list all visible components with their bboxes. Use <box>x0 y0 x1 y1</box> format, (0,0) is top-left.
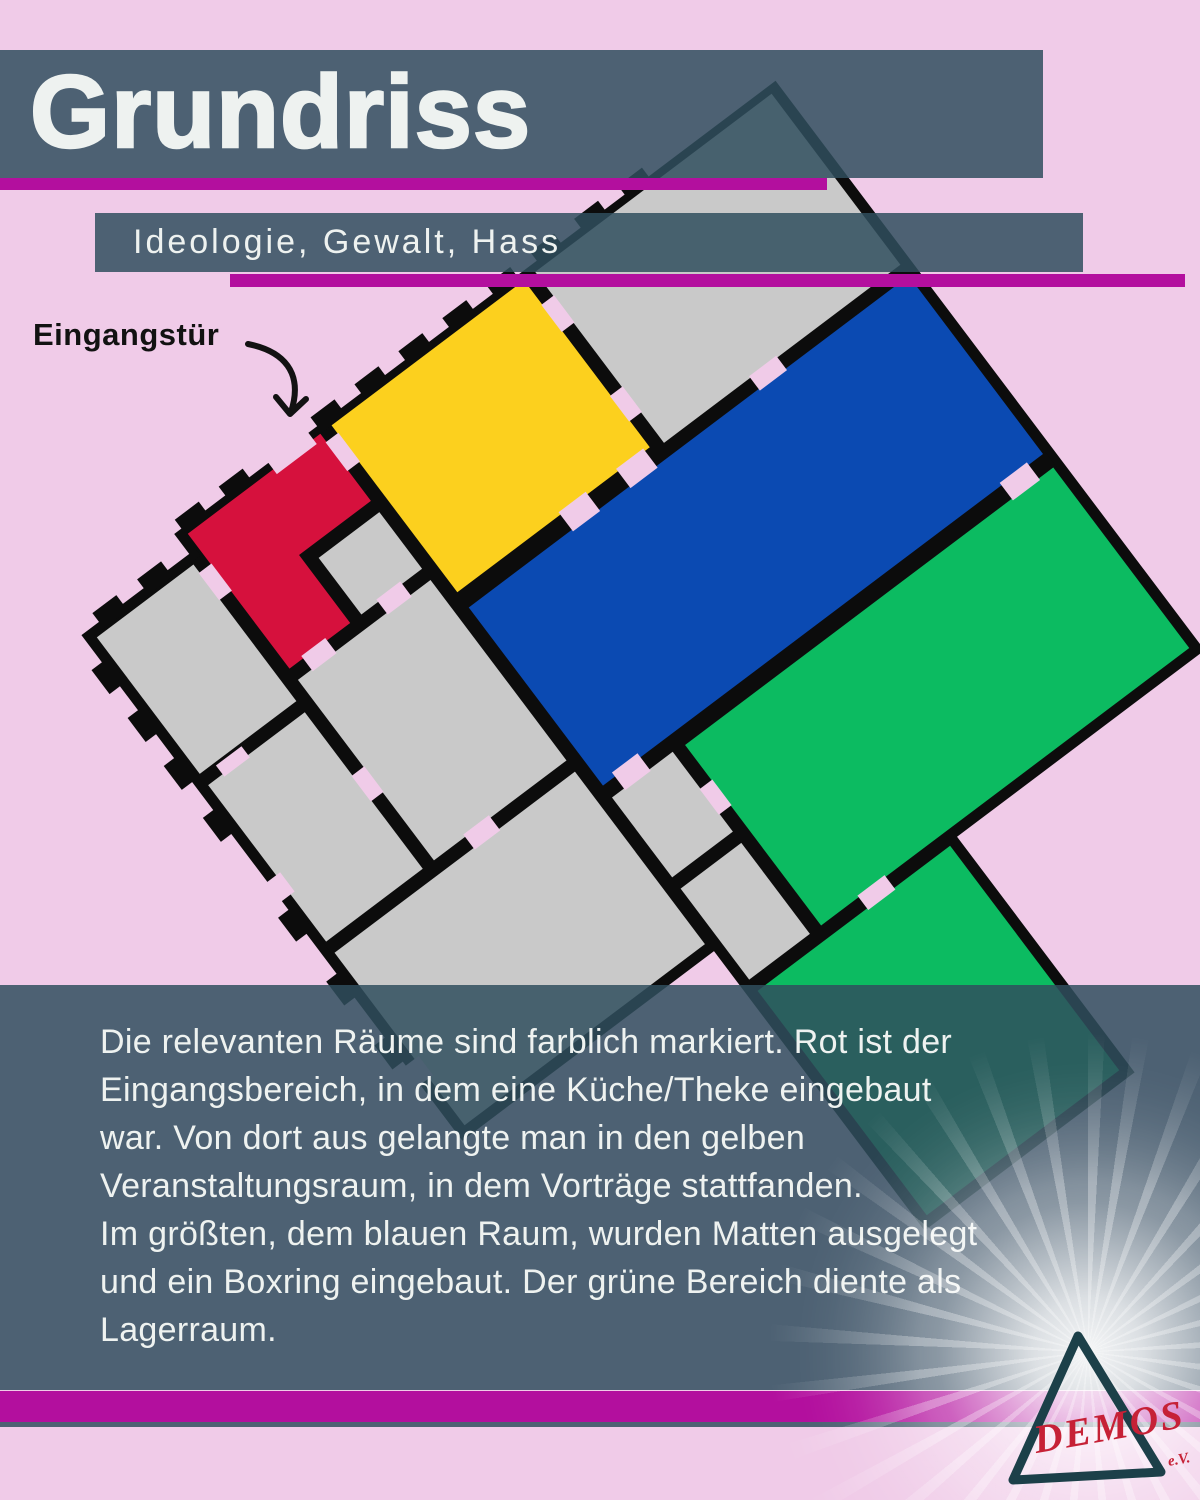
entrance-label: Eingangstür <box>33 317 219 353</box>
description-line: Eingangsbereich, in dem eine Küche/Theke… <box>100 1066 1120 1114</box>
demos-logo <box>950 1280 1200 1500</box>
description-line: Die relevanten Räume sind farblich marki… <box>100 1018 1120 1066</box>
description-line: war. Von dort aus gelangte man in den ge… <box>100 1114 1120 1162</box>
description-line: Im größten, dem blauen Raum, wurden Matt… <box>100 1210 1120 1258</box>
subtitle-underline-bar <box>230 274 1185 287</box>
page-title: Grundriss <box>30 56 531 168</box>
subtitle: Ideologie, Gewalt, Hass <box>133 213 561 272</box>
description-line: Veranstaltungsraum, in dem Vorträge stat… <box>100 1162 1120 1210</box>
title-underline-bar <box>0 178 827 190</box>
infographic-canvas: Grundriss Ideologie, Gewalt, Hass Eingan… <box>0 0 1200 1500</box>
curved-arrow-icon <box>228 330 348 450</box>
